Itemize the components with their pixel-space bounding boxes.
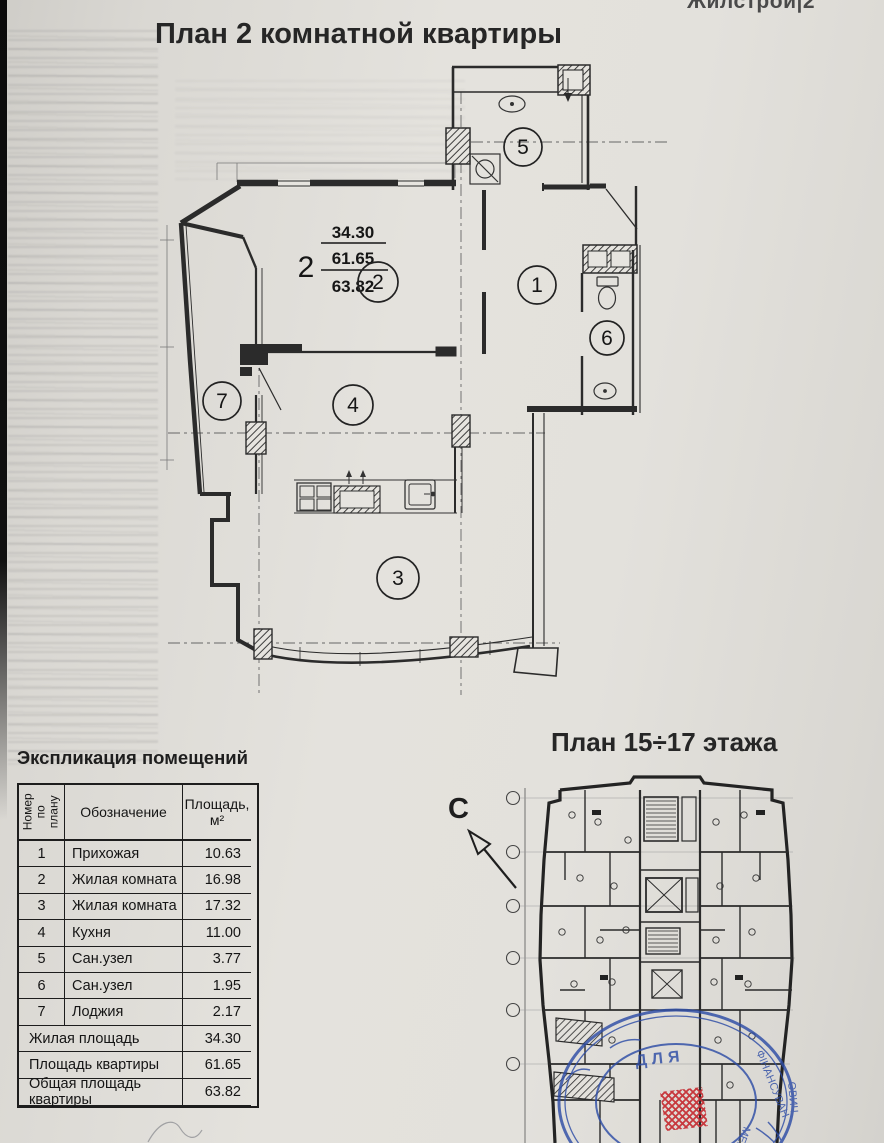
south-window-band — [254, 629, 532, 666]
page-title: План 2 комнатной квартиры — [155, 18, 562, 51]
room-marker-6: 6 — [590, 321, 624, 355]
total-value: 61.65 — [183, 1052, 251, 1079]
room-marker-5: 5 — [504, 128, 542, 166]
developer-logo: Жилстрой|2 — [687, 0, 815, 14]
svg-text:2: 2 — [298, 251, 315, 284]
row-number: 6 — [19, 973, 65, 999]
col-header-designation: Обозначение — [65, 785, 183, 841]
room-marker-7: 7 — [203, 382, 241, 420]
svg-text:5: 5 — [517, 136, 529, 159]
row-area: 2.17 — [183, 999, 251, 1025]
room-marker-1: 1 — [518, 266, 556, 304]
balcony-window-unit — [240, 344, 302, 376]
row-number: 2 — [19, 867, 65, 893]
row-number: 7 — [19, 999, 65, 1025]
toilet-icon — [597, 277, 618, 309]
interior-walls — [262, 186, 637, 676]
room-marker-3: 3 — [377, 557, 419, 599]
svg-text:4: 4 — [347, 394, 359, 417]
col-header-area: Площадь, м² — [183, 785, 251, 841]
row-area: 10.63 — [183, 841, 251, 867]
elevator-shaft — [646, 878, 698, 912]
total-label: Общая площадь квартиры — [19, 1079, 183, 1106]
row-number: 1 — [19, 841, 65, 867]
north-arrow-icon — [469, 831, 490, 854]
room-marker-4: 4 — [333, 385, 373, 425]
row-area: 11.00 — [183, 920, 251, 946]
stamp-text: ДЛЯ — [635, 1048, 686, 1070]
svg-text:7: 7 — [216, 390, 228, 413]
svg-text:34.30: 34.30 — [332, 223, 375, 242]
row-area: 16.98 — [183, 867, 251, 893]
row-area: 3.77 — [183, 947, 251, 973]
apartment-floor-plan: 2 34.30 61.65 63.82 1 2 3 4 5 6 7 — [160, 55, 705, 705]
bleed-through-text-noise — [8, 30, 158, 765]
row-name: Жилая комната — [65, 894, 183, 920]
svg-text:2: 2 — [372, 271, 384, 294]
total-label: Жилая площадь — [19, 1026, 183, 1053]
red-apartment-marker — [660, 1087, 708, 1131]
sink-icon — [499, 96, 525, 112]
svg-text:3: 3 — [392, 567, 404, 590]
row-number: 4 — [19, 920, 65, 946]
svg-text:С: С — [448, 793, 469, 825]
row-area: 1.95 — [183, 973, 251, 999]
north-exterior-wall — [237, 179, 456, 188]
svg-text:1: 1 — [531, 274, 543, 297]
svg-text:63.82: 63.82 — [332, 277, 375, 296]
small-plan-title: План 15÷17 этажа — [551, 727, 777, 758]
col-header-number: Номер по плану — [19, 785, 65, 841]
row-name: Сан.узел — [65, 973, 183, 999]
total-value: 63.82 — [183, 1079, 251, 1106]
north-indicator: С — [448, 793, 516, 888]
scan-edge-shadow — [0, 0, 7, 820]
row-number: 5 — [19, 947, 65, 973]
explication-title: Экспликация помещений — [17, 747, 248, 769]
kitchen-sink-icon — [405, 480, 435, 509]
stove-icon — [297, 483, 331, 511]
stairwell — [644, 797, 696, 841]
stamp-text: МЕНТІ — [728, 1125, 752, 1143]
explication-table: Номер по плану Обозначение Площадь, м² 1… — [17, 783, 259, 1108]
row-number: 3 — [19, 894, 65, 920]
total-value: 34.30 — [183, 1026, 251, 1053]
row-name: Сан.узел — [65, 947, 183, 973]
wc-sink-icon — [594, 383, 616, 399]
washing-machine-icon — [470, 154, 500, 184]
row-name: Прихожая — [65, 841, 183, 867]
pen-flourish — [140, 1118, 210, 1143]
building-floor-plan-15-17: С — [400, 770, 884, 1143]
scanned-floor-plan-page: План 2 комнатной квартиры Жилстрой|2 — [0, 0, 884, 1143]
svg-text:6: 6 — [601, 327, 613, 350]
row-name: Лоджия — [65, 999, 183, 1025]
vent-arrow-icon — [564, 93, 572, 102]
stairwell-lower — [646, 928, 682, 998]
row-area: 17.32 — [183, 894, 251, 920]
row-name: Жилая комната — [65, 867, 183, 893]
oven-icon — [334, 470, 380, 513]
row-name: Кухня — [65, 920, 183, 946]
kitchen-counter — [294, 470, 457, 513]
